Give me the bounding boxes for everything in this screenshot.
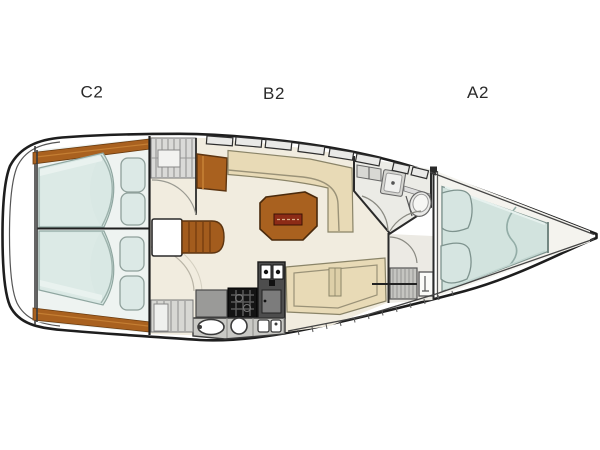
svg-text:A2: A2 <box>467 83 489 102</box>
svg-text:B2: B2 <box>263 84 285 103</box>
svg-text:C2: C2 <box>81 83 104 102</box>
